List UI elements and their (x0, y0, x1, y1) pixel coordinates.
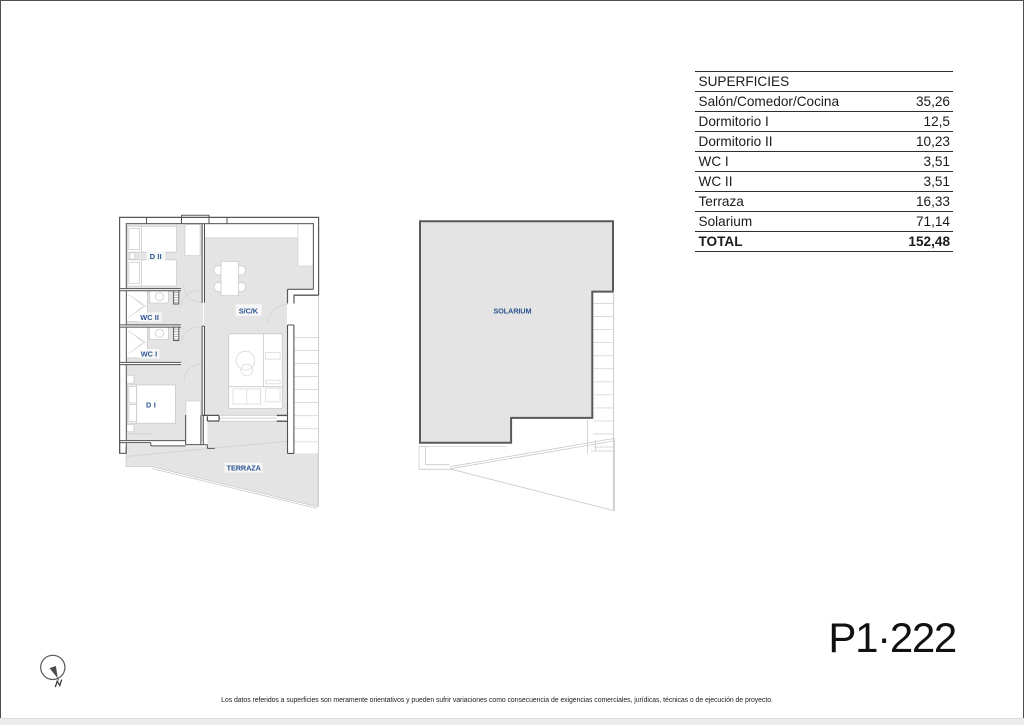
svg-text:S/C/K: S/C/K (239, 306, 259, 315)
svg-text:SOLARIUM: SOLARIUM (493, 307, 531, 316)
svg-text:D II: D II (150, 252, 162, 261)
svg-text:WC I: WC I (141, 350, 158, 359)
svg-text:D I: D I (146, 400, 156, 409)
svg-text:WC II: WC II (140, 313, 159, 322)
svg-text:TERRAZA: TERRAZA (227, 463, 262, 472)
